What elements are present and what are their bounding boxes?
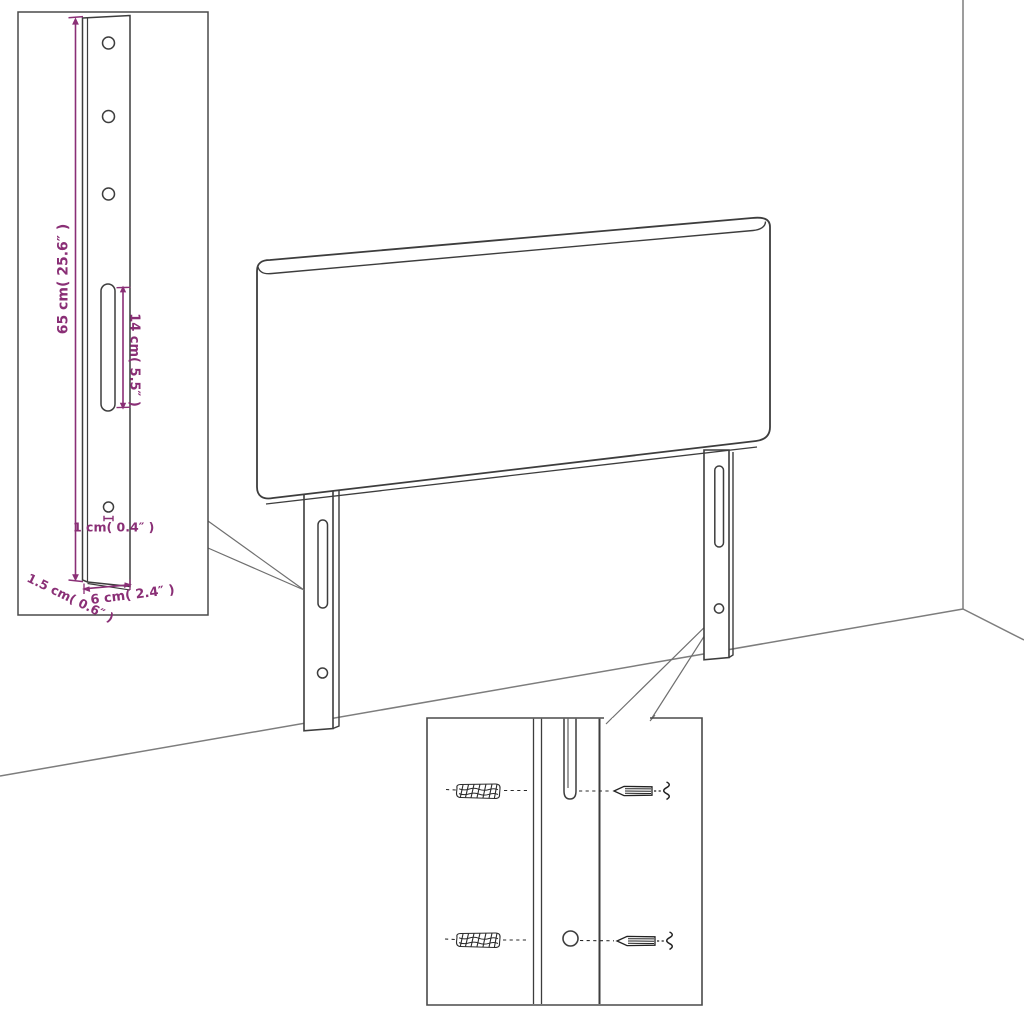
headboard-dimension-diagram: 65 cm( 25.6″ ) 14 cm( 5.5″ ) 1 cm( 0.4″ … (0, 0, 1024, 1024)
dim-1cm-label: 1 cm( 0.4″ ) (73, 520, 154, 535)
leg-detail-inset: 65 cm( 25.6″ ) 14 cm( 5.5″ ) 1 cm( 0.4″ … (18, 12, 208, 625)
diagram-canvas: 65 cm( 25.6″ ) 14 cm( 5.5″ ) 1 cm( 0.4″ … (0, 0, 1024, 1024)
mounting-detail-inset (427, 715, 702, 1005)
right-leg (704, 450, 733, 660)
dim-14cm-label: 14 cm( 5.5″ ) (127, 313, 142, 407)
left-leg (304, 462, 339, 731)
dim-65cm-label: 65 cm( 25.6″ ) (56, 224, 72, 335)
